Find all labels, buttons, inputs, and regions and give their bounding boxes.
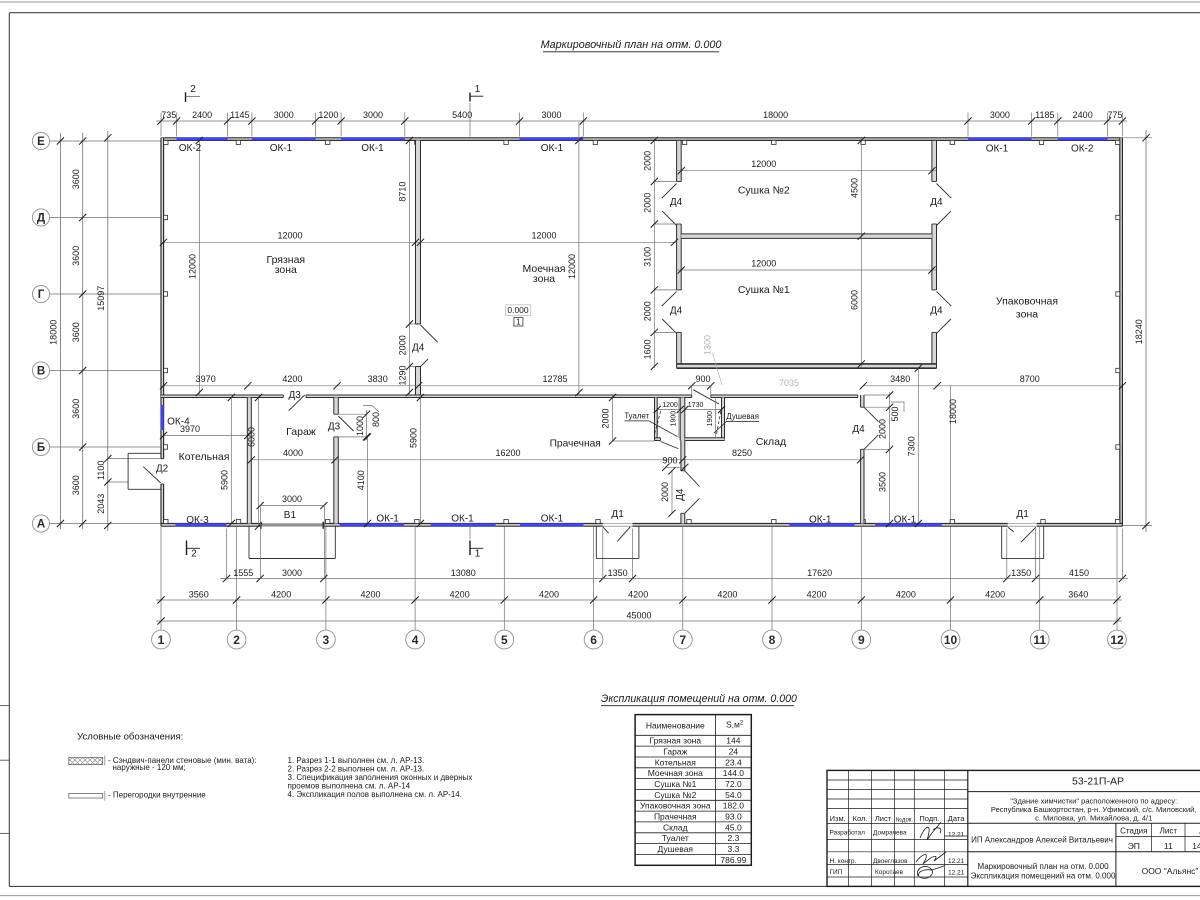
svg-text:1: 1 [158,633,165,647]
svg-text:ОК-1: ОК-1 [809,515,832,526]
svg-text:2000: 2000 [398,335,408,355]
svg-text:Кол.: Кол. [853,814,868,823]
svg-text:Д4: Д4 [670,197,683,208]
svg-text:6: 6 [590,633,597,647]
svg-text:Д1: Д1 [611,509,624,520]
svg-text:2000: 2000 [643,151,653,171]
svg-text:4200: 4200 [271,590,291,600]
svg-text:4200: 4200 [985,590,1005,600]
svg-text:1200: 1200 [318,110,338,120]
svg-text:Маркировочный план на отм. 0.0: Маркировочный план на отм. 0.000 [541,39,722,51]
svg-text:12785: 12785 [542,374,567,384]
svg-text:Дата: Дата [948,814,965,823]
svg-text:3000: 3000 [282,494,302,504]
svg-text:В: В [37,366,45,378]
svg-text:зона: зона [275,264,297,276]
svg-text:Двоеглазов: Двоеглазов [873,858,908,865]
svg-text:0.000: 0.000 [507,305,529,315]
svg-text:Сушка №1: Сушка №1 [654,779,696,789]
svg-text:Прачечная: Прачечная [550,439,601,450]
svg-text:2.3: 2.3 [727,833,739,843]
svg-text:Туалет: Туалет [662,833,689,843]
svg-text:8710: 8710 [398,182,408,202]
svg-text:Гараж: Гараж [663,747,687,757]
svg-text:ОК-1: ОК-1 [541,514,564,525]
svg-text:1: 1 [475,548,481,559]
svg-text:1350: 1350 [608,568,628,578]
svg-text:Д4: Д4 [930,197,943,208]
svg-text:5900: 5900 [409,428,419,448]
svg-text:3640: 3640 [1068,590,1088,600]
svg-text:12000: 12000 [188,254,198,279]
svg-text:1730: 1730 [688,402,704,409]
svg-text:2400: 2400 [1073,110,1093,120]
svg-text:5900: 5900 [220,470,230,490]
svg-text:10: 10 [944,633,958,647]
svg-text:Подп.: Подп. [919,814,939,823]
svg-text:Грязная зона: Грязная зона [650,736,702,746]
svg-text:12000: 12000 [277,231,302,241]
svg-text:4100: 4100 [356,470,366,490]
svg-text:7300: 7300 [907,436,917,456]
svg-text:15097: 15097 [96,286,106,311]
svg-text:ОК-1: ОК-1 [361,143,384,154]
svg-text:Экспликация помещений на отм.: Экспликация помещений на отм. 0.000 [971,872,1116,881]
svg-text:Стадия: Стадия [1120,826,1147,835]
svg-text:9: 9 [858,633,865,647]
svg-text:735: 735 [161,110,176,120]
svg-text:ОК-1: ОК-1 [270,143,293,154]
svg-text:4200: 4200 [628,590,648,600]
svg-text:Б: Б [37,442,45,454]
svg-text:17620: 17620 [807,568,832,578]
svg-text:Д4: Д4 [675,488,686,501]
svg-text:6000: 6000 [850,290,860,310]
svg-text:786.99: 786.99 [720,855,746,865]
svg-text:7035: 7035 [779,378,799,388]
svg-text:А: А [37,519,45,531]
svg-text:24: 24 [729,747,739,757]
svg-text:54.0: 54.0 [725,790,742,800]
svg-text:144.0: 144.0 [723,768,745,778]
svg-text:Д4: Д4 [930,306,943,317]
svg-text:800: 800 [371,412,381,427]
svg-text:23.4: 23.4 [725,757,742,767]
svg-text:Душевая: Душевая [658,844,694,854]
svg-text:наружные - 120 мм;: наружные - 120 мм; [113,763,186,772]
svg-text:ОК-1: ОК-1 [376,514,399,525]
svg-text:775: 775 [1107,110,1122,120]
svg-text:1100: 1100 [96,461,106,480]
svg-text:4200: 4200 [896,590,916,600]
svg-text:Маркировочный план на отм. 0.0: Маркировочный план на отм. 0.000 [977,862,1109,871]
svg-text:ОК-1: ОК-1 [986,144,1009,155]
svg-text:3600: 3600 [71,246,81,266]
svg-text:Д2: Д2 [156,464,169,475]
svg-text:Д4: Д4 [412,342,425,353]
svg-text:1185: 1185 [1035,110,1054,120]
svg-text:Д4: Д4 [670,306,683,317]
svg-text:ОК-4: ОК-4 [167,417,190,428]
svg-text:Упаковочная: Упаковочная [996,296,1058,308]
svg-text:ОК-2: ОК-2 [179,143,202,154]
svg-text:Условные обозначения:: Условные обозначения: [77,732,183,743]
svg-text:Моечная зона: Моечная зона [648,768,703,778]
svg-text:3000: 3000 [363,110,383,120]
svg-text:18000: 18000 [49,320,59,345]
svg-text:1900: 1900 [670,411,677,427]
svg-text:Туалет: Туалет [624,412,649,421]
svg-text:12000: 12000 [567,254,577,279]
svg-text:53-21П-АР: 53-21П-АР [1072,775,1124,787]
svg-text:2000: 2000 [643,193,653,213]
svg-text:3100: 3100 [643,247,653,267]
svg-text:ОК-3: ОК-3 [186,515,209,526]
svg-text:Изм.: Изм. [830,814,846,823]
svg-text:Д3: Д3 [328,422,341,433]
svg-text:зона: зона [1016,308,1038,320]
svg-text:Сушка №2: Сушка №2 [738,184,790,196]
svg-text:Склад: Склад [756,436,786,448]
svg-text:2: 2 [190,84,196,95]
svg-text:1290: 1290 [398,365,408,385]
svg-text:ООО "Альянс": ООО "Альянс" [1142,866,1199,876]
svg-text:1555: 1555 [233,568,253,578]
svg-text:Д4: Д4 [852,424,865,435]
svg-text:1: 1 [516,318,521,327]
svg-text:3000: 3000 [282,568,302,578]
svg-text:Лист: Лист [1160,826,1178,835]
svg-text:182.0: 182.0 [723,801,745,811]
svg-text:Упаковочная зона: Упаковочная зона [640,801,711,811]
svg-text:2043: 2043 [96,494,106,514]
svg-text:ОК-2: ОК-2 [1071,144,1094,155]
svg-text:Склад: Склад [663,822,688,832]
svg-text:Г: Г [38,289,45,301]
svg-text:2: 2 [191,548,197,559]
svg-text:Наименование: Наименование [646,720,705,730]
svg-text:12.21: 12.21 [948,858,965,865]
svg-text:18240: 18240 [1134,319,1144,344]
svg-text:4500: 4500 [850,178,860,198]
svg-text:2000: 2000 [601,408,611,428]
svg-text:45000: 45000 [626,611,651,621]
svg-text:12.21: 12.21 [948,870,965,877]
svg-text:18000: 18000 [948,399,958,424]
svg-text:- Перегородки внутренние: - Перегородки внутренние [108,791,206,800]
svg-text:4200: 4200 [807,590,827,600]
svg-text:№док.: №док. [896,817,914,824]
svg-text:1600: 1600 [643,339,653,359]
svg-text:2000: 2000 [877,419,887,439]
svg-text:5400: 5400 [452,110,472,120]
svg-text:Сушка №2: Сушка №2 [654,790,696,800]
svg-text:12000: 12000 [751,159,776,169]
svg-text:ЭП: ЭП [1128,841,1140,851]
svg-text:Котельная: Котельная [179,451,230,463]
svg-text:ОК-1: ОК-1 [541,143,564,154]
svg-text:Н. контр.: Н. контр. [830,858,857,865]
svg-text:Разработал: Разработал [830,828,866,836]
svg-text:4200: 4200 [360,590,380,600]
svg-text:3600: 3600 [71,475,81,495]
svg-text:7: 7 [679,633,686,647]
svg-text:1200: 1200 [662,402,678,409]
svg-text:12: 12 [1110,633,1124,647]
svg-text:14: 14 [1192,841,1200,851]
svg-text:18000: 18000 [763,110,788,120]
svg-text:3600: 3600 [71,399,81,419]
svg-text:2000: 2000 [660,482,670,502]
svg-text:1300: 1300 [703,335,713,355]
svg-text:5: 5 [501,633,508,647]
svg-text:Прачечная: Прачечная [654,812,697,822]
svg-text:6000: 6000 [247,427,257,447]
svg-text:Коротаев: Коротаев [875,869,904,876]
svg-text:2: 2 [233,633,240,647]
svg-text:144: 144 [726,736,740,746]
svg-text:ГИП: ГИП [830,869,843,876]
svg-text:3970: 3970 [196,374,216,384]
svg-text:Гараж: Гараж [286,426,316,438]
svg-text:11: 11 [1033,633,1046,647]
svg-text:ОК-1: ОК-1 [894,515,917,526]
svg-text:3000: 3000 [274,110,294,120]
svg-text:3600: 3600 [71,169,81,189]
svg-text:Душевая: Душевая [726,412,759,421]
svg-text:1145: 1145 [230,110,249,120]
svg-text:3560: 3560 [189,590,209,600]
svg-text:В1: В1 [284,510,297,521]
svg-text:1350: 1350 [1011,568,1031,578]
svg-text:45.0: 45.0 [725,822,742,832]
svg-text:3480: 3480 [890,374,910,384]
svg-text:3500: 3500 [877,472,887,492]
svg-text:с. Миловка, ул. Михайлова, д.: с. Миловка, ул. Михайлова, д. 4/1 [1035,814,1152,823]
svg-text:4150: 4150 [1069,568,1089,578]
svg-text:12000: 12000 [751,258,776,268]
svg-text:Сушка №1: Сушка №1 [738,284,790,296]
svg-text:12.21: 12.21 [948,832,965,839]
svg-text:Экспликация помещений на отм.: Экспликация помещений на отм. 0.000 [601,693,797,705]
svg-text:4200: 4200 [717,590,737,600]
svg-text:Д1: Д1 [1016,509,1029,520]
svg-text:1000: 1000 [355,416,365,436]
svg-text:16200: 16200 [495,448,520,458]
svg-text:ОК-1: ОК-1 [451,514,474,525]
svg-text:72.0: 72.0 [725,779,742,789]
svg-text:4: 4 [412,633,419,647]
svg-text:1: 1 [475,84,481,95]
svg-text:11: 11 [1164,841,1173,851]
svg-text:2400: 2400 [192,110,212,120]
svg-text:3600: 3600 [71,322,81,342]
svg-text:12000: 12000 [531,231,556,241]
svg-text:900: 900 [695,374,710,384]
svg-text:4200: 4200 [282,374,302,384]
svg-text:4200: 4200 [450,590,470,600]
svg-text:13080: 13080 [451,568,476,578]
svg-text:зона: зона [533,273,555,285]
svg-text:8: 8 [769,633,776,647]
svg-text:8700: 8700 [1020,374,1040,384]
svg-text:Котельная: Котельная [655,757,697,767]
svg-text:4200: 4200 [539,590,559,600]
svg-text:4000: 4000 [283,448,303,458]
svg-text:Д3: Д3 [289,390,302,401]
svg-text:8250: 8250 [732,448,752,458]
svg-text:Е: Е [37,136,45,148]
svg-text:4. Экспликация полов выполнена: 4. Экспликация полов выполнена см. л. АР… [288,790,462,799]
svg-text:900: 900 [662,456,677,466]
svg-text:500: 500 [890,406,900,421]
svg-text:3: 3 [323,633,330,647]
svg-text:3000: 3000 [541,110,561,120]
svg-text:Лист: Лист [875,814,892,823]
svg-text:2000: 2000 [643,301,653,321]
svg-text:93.0: 93.0 [725,812,742,822]
svg-text:3.3: 3.3 [727,844,739,854]
svg-text:3830: 3830 [368,374,388,384]
svg-text:Домрачева: Домрачева [873,829,907,836]
svg-text:1900: 1900 [707,411,714,427]
svg-text:ИП Александров Алексей Виталье: ИП Александров Алексей Витальевич [971,835,1113,844]
svg-text:3000: 3000 [990,110,1010,120]
svg-text:Д: Д [37,213,45,225]
